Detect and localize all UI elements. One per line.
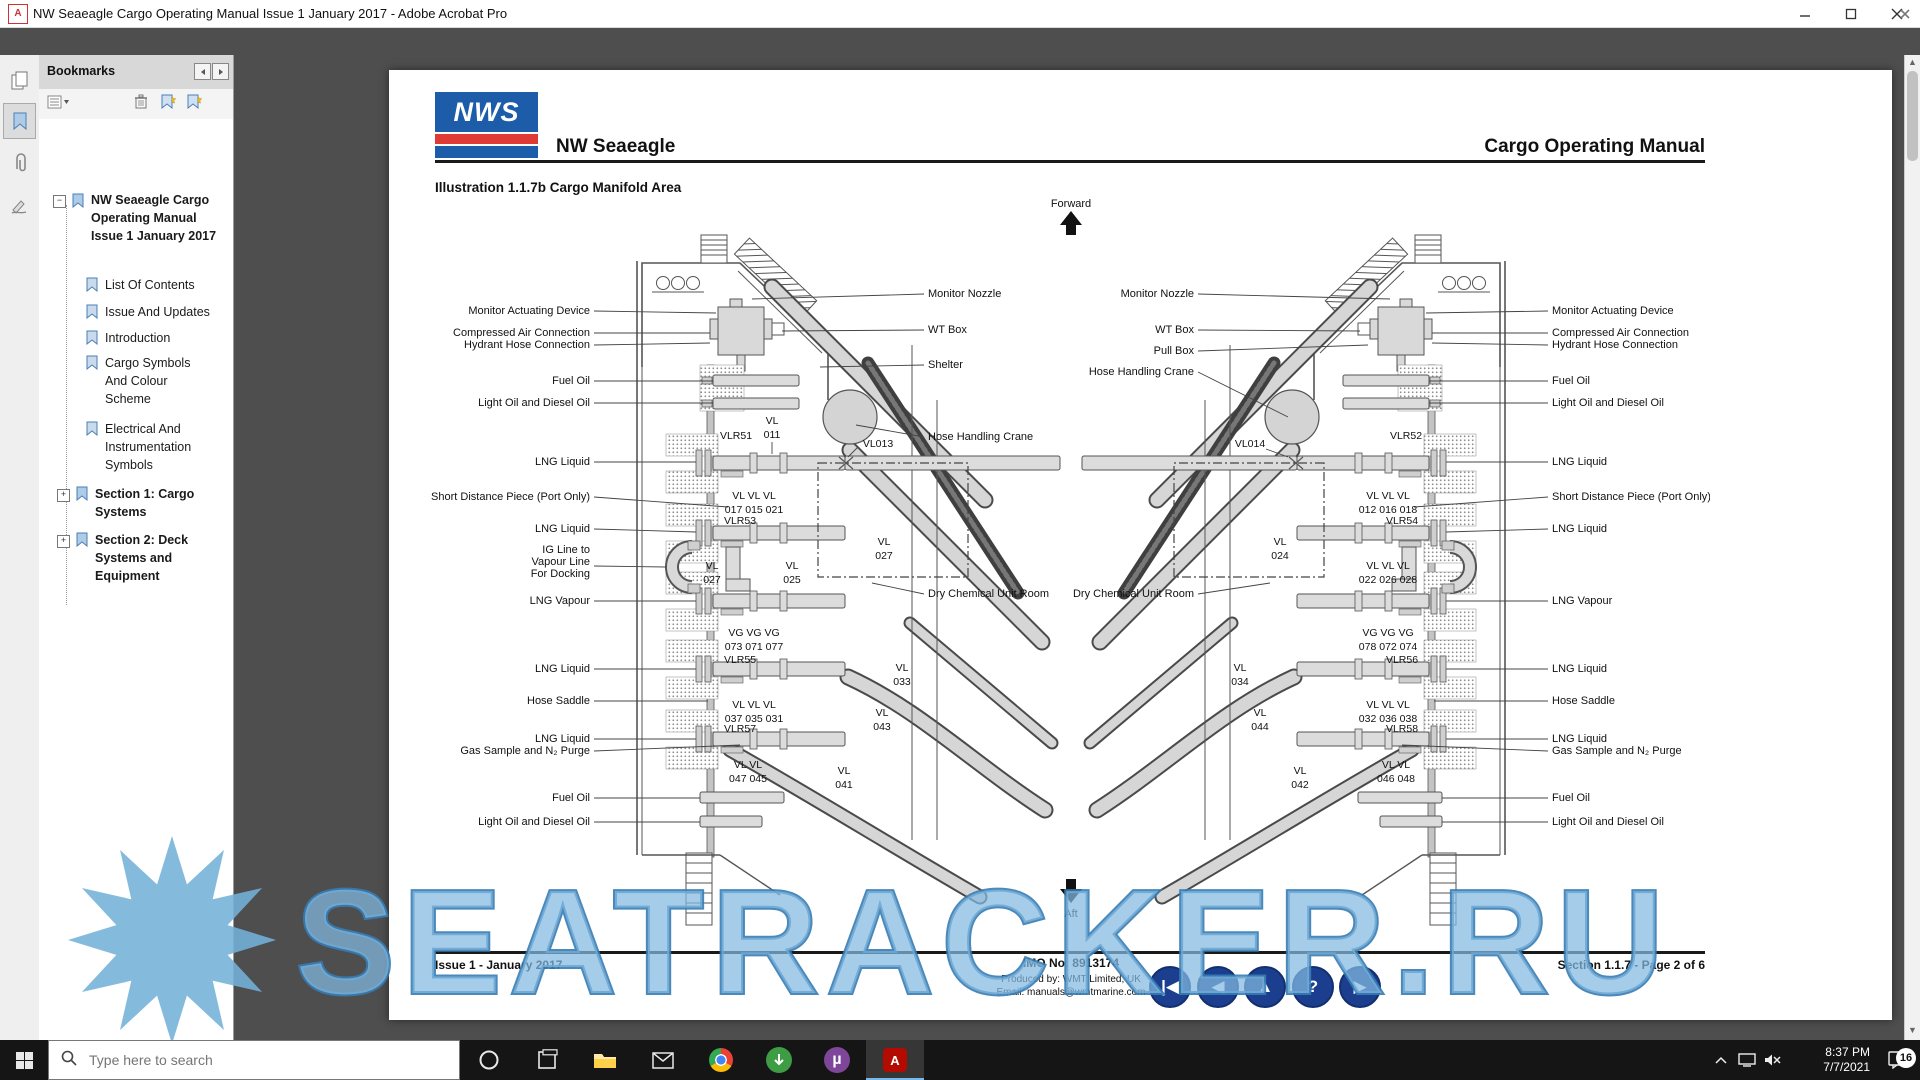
bookmark-issue-and-updates[interactable]: Issue And Updates — [105, 303, 227, 321]
valve-label: VG VG VG — [728, 627, 779, 639]
callout: Compressed Air Connection — [453, 327, 590, 339]
navigation-pane-strip — [0, 55, 40, 1040]
ship-name: NW Seaeagle — [556, 136, 675, 158]
clock-date: 7/7/2021 — [1792, 1060, 1870, 1075]
callout: LNG Liquid — [1552, 663, 1607, 675]
attachments-icon[interactable] — [3, 145, 36, 181]
callout: Hose Handling Crane — [928, 431, 1033, 443]
valve-label: VL — [766, 415, 779, 427]
valve-label: VLR56 — [1386, 654, 1418, 666]
valve-label: VLR52 — [1390, 430, 1422, 442]
callout: Fuel Oil — [1552, 792, 1590, 804]
valve-label: VL — [1234, 662, 1247, 674]
callout: Shelter — [928, 359, 963, 371]
valve-label: VL VL VL — [732, 699, 776, 711]
callout: Monitor Actuating Device — [1552, 305, 1674, 317]
callout: Gas Sample and N₂ Purge — [1552, 745, 1682, 757]
valve-label: VLR51 — [720, 430, 752, 442]
callout: WT Box — [928, 324, 967, 336]
taskbar-search-box[interactable] — [48, 1040, 460, 1080]
callout: LNG Vapour — [530, 595, 591, 607]
aft-arrow-shaft — [1066, 879, 1076, 889]
callout: Light Oil and Diesel Oil — [478, 816, 590, 828]
bookmark-icon — [85, 277, 99, 295]
download-manager-icon[interactable] — [750, 1040, 808, 1080]
valve-label: 024 — [1271, 550, 1289, 562]
display-icon[interactable] — [1734, 1040, 1760, 1080]
nws-logo-red-stripe — [435, 134, 538, 144]
callout: Monitor Nozzle — [1121, 288, 1194, 300]
valve-label: 025 — [783, 574, 801, 586]
clock-time: 8:37 PM — [1792, 1045, 1870, 1060]
bookmarks-toolbar — [39, 89, 233, 120]
toolbar-close-icon[interactable] — [1898, 7, 1912, 21]
callout: Short Distance Piece (Port Only) — [1552, 491, 1710, 503]
action-center-icon[interactable]: 16 — [1876, 1040, 1920, 1080]
valve-label: VL — [878, 536, 891, 548]
valve-label: VL VL VL — [732, 490, 776, 502]
window-title: NW Seaeagle Cargo Operating Manual Issue… — [33, 6, 507, 21]
volume-muted-icon[interactable] — [1760, 1040, 1786, 1080]
task-view-icon[interactable] — [518, 1040, 576, 1080]
callout: Monitor Nozzle — [928, 288, 1001, 300]
callout: Light Oil and Diesel Oil — [1552, 397, 1664, 409]
starboard-callouts-left: Monitor Nozzle WT Box Pull Box Hose Hand… — [1073, 288, 1390, 600]
search-icon — [61, 1050, 77, 1071]
mail-icon[interactable] — [634, 1040, 692, 1080]
screen: A NW Seaeagle Cargo Operating Manual Iss… — [0, 0, 1920, 1080]
bookmark-section-1[interactable]: Section 1: Cargo Systems — [95, 485, 217, 521]
vertical-scrollbar[interactable]: ▲ ▼ — [1904, 55, 1920, 1040]
bookmark-icon — [71, 193, 85, 211]
valve-label: VLR55 — [724, 654, 756, 666]
new-tagged-bookmark-icon[interactable] — [185, 93, 203, 115]
callout: Hydrant Hose Connection — [464, 339, 590, 351]
callout: Fuel Oil — [552, 792, 590, 804]
bookmark-icon — [75, 486, 89, 504]
callout: LNG Liquid — [1552, 456, 1607, 468]
notification-count-badge: 16 — [1896, 1048, 1916, 1068]
taskbar-clock[interactable]: 8:37 PM 7/7/2021 — [1792, 1045, 1870, 1075]
bookmark-icon — [85, 355, 99, 373]
callout: LNG Vapour — [1552, 595, 1613, 607]
bookmark-cargo-symbols[interactable]: Cargo Symbols And Colour Scheme — [105, 354, 209, 408]
valve-label: 022 026 028 — [1359, 574, 1418, 586]
header-rule — [435, 160, 1705, 163]
callout: LNG Liquid — [1552, 733, 1607, 745]
valve-label: VLR58 — [1386, 723, 1418, 735]
callout: Fuel Oil — [1552, 375, 1590, 387]
callout: LNG Liquid — [535, 663, 590, 675]
nws-logo: NWS — [435, 92, 538, 132]
callout: Hose Saddle — [1552, 695, 1615, 707]
valve-label: VLR53 — [724, 515, 756, 527]
cargo-manifold-diagram: Forward Aft Monitor Actuating Device Com… — [420, 195, 1710, 947]
valve-label: VL — [838, 765, 851, 777]
callout: Gas Sample and N₂ Purge — [460, 745, 590, 757]
valve-label: 042 — [1291, 779, 1309, 791]
forward-label: Forward — [1051, 198, 1091, 210]
nav-next-page-button[interactable]: ▶ — [1339, 966, 1381, 1008]
scrollbar-thumb[interactable] — [1907, 71, 1918, 161]
callout: LNG Liquid — [535, 523, 590, 535]
aft-arrow-icon — [1060, 889, 1082, 903]
acrobat-taskbar-icon[interactable]: A — [866, 1040, 924, 1080]
callout: Pull Box — [1154, 345, 1195, 357]
illustration-title: Illustration 1.1.7b Cargo Manifold Area — [435, 180, 681, 195]
nav-contents-button[interactable]: ▲ — [1244, 966, 1286, 1008]
valve-label: VL — [896, 662, 909, 674]
signatures-icon[interactable] — [3, 187, 36, 223]
bookmark-icon — [85, 421, 99, 439]
callout: Short Distance Piece (Port Only) — [431, 491, 590, 503]
callout: Vapour Line — [531, 556, 590, 568]
callout: LNG Liquid — [1552, 523, 1607, 535]
valve-label: 044 — [1251, 721, 1269, 733]
bookmarks-tree: − NW Seaeagle Cargo Operating Manual Iss… — [39, 119, 233, 1040]
manual-title: Cargo Operating Manual — [1355, 136, 1705, 158]
nav-previous-page-button[interactable]: ◀ — [1197, 966, 1239, 1008]
callout: Monitor Actuating Device — [468, 305, 590, 317]
callout: Light Oil and Diesel Oil — [478, 397, 590, 409]
valve-label: VL VL VL — [1366, 699, 1410, 711]
callout: WT Box — [1155, 324, 1194, 336]
valve-label: 046 048 — [1377, 773, 1415, 785]
valve-label: VL013 — [863, 438, 894, 450]
acrobat-app-icon: A — [8, 4, 28, 24]
callout: Light Oil and Diesel Oil — [1552, 816, 1664, 828]
valve-label: VLR54 — [1386, 515, 1418, 527]
forward-arrow-shaft — [1066, 225, 1076, 235]
scroll-down-icon[interactable]: ▼ — [1907, 1025, 1918, 1036]
bookmark-introduction[interactable]: Introduction — [105, 329, 223, 347]
start-button[interactable] — [0, 1040, 48, 1080]
footer-issue: Issue 1 - January 2017 — [435, 958, 562, 972]
callout: LNG Liquid — [535, 456, 590, 468]
bookmarks-panel-icon[interactable] — [3, 103, 36, 139]
panel-forward-icon[interactable] — [212, 63, 229, 80]
title-bar: A NW Seaeagle Cargo Operating Manual Iss… — [0, 0, 1920, 28]
port-manifold-graphics — [637, 235, 1060, 925]
close-button[interactable] — [1874, 0, 1920, 27]
section1-expander[interactable]: + — [57, 489, 70, 502]
bookmark-electrical-symbols[interactable]: Electrical And Instrumentation Symbols — [105, 420, 217, 474]
maximize-button[interactable] — [1828, 0, 1874, 27]
forward-arrow-icon — [1060, 211, 1082, 225]
bookmark-list-of-contents[interactable]: List Of Contents — [105, 276, 223, 294]
panel-back-icon[interactable] — [194, 63, 211, 80]
taskbar: µ A 8:37 PM 7/7/2021 16 — [0, 1040, 1920, 1080]
valve-label: VL — [786, 560, 799, 572]
callout: Hydrant Hose Connection — [1552, 339, 1678, 351]
valve-label: VL — [876, 707, 889, 719]
nav-first-page-button[interactable]: |◀ — [1149, 966, 1191, 1008]
aft-label: Aft — [1064, 908, 1077, 920]
valve-label: VL014 — [1235, 438, 1266, 450]
valve-label: VL VL VL — [1366, 490, 1410, 502]
valve-label: 027 — [703, 574, 721, 586]
utorrent-icon[interactable]: µ — [808, 1040, 866, 1080]
bookmark-options-icon[interactable] — [47, 94, 71, 115]
scroll-up-icon[interactable]: ▲ — [1907, 57, 1918, 68]
valve-label: VL VL — [734, 759, 762, 771]
valve-label: 043 — [873, 721, 891, 733]
valve-label: 041 — [835, 779, 853, 791]
valve-label: 047 045 — [729, 773, 767, 785]
starboard-manifold-graphics — [1082, 235, 1505, 925]
file-explorer-icon[interactable] — [576, 1040, 634, 1080]
nav-help-button[interactable]: ? — [1292, 966, 1334, 1008]
valve-label: 073 071 077 — [725, 641, 784, 653]
delete-bookmark-icon[interactable] — [133, 93, 149, 115]
valve-label: VL — [1254, 707, 1267, 719]
valve-label: VL — [1274, 536, 1287, 548]
callout: IG Line to — [542, 544, 590, 556]
valve-label: 078 072 074 — [1359, 641, 1418, 653]
search-input[interactable] — [87, 1051, 431, 1069]
callout: LNG Liquid — [535, 733, 590, 745]
valve-label: VL VL VL — [1366, 560, 1410, 572]
system-tray: 8:37 PM 7/7/2021 16 — [1708, 1040, 1920, 1080]
port-callouts-right: Monitor Nozzle WT Box Shelter Hose Handl… — [752, 288, 1049, 600]
callout: Fuel Oil — [552, 375, 590, 387]
tray-expand-icon[interactable] — [1708, 1040, 1734, 1080]
pdf-page: NWS NW Seaeagle Cargo Operating Manual I… — [389, 70, 1892, 1020]
valve-label: 027 — [875, 550, 893, 562]
callout: For Docking — [531, 568, 590, 580]
root-expander[interactable]: − — [53, 195, 66, 208]
section2-expander[interactable]: + — [57, 535, 70, 548]
bookmark-icon — [85, 330, 99, 348]
callout: Compressed Air Connection — [1552, 327, 1689, 339]
callout: Dry Chemical Unit Room — [1073, 588, 1194, 600]
valve-label: 011 — [764, 429, 781, 441]
bookmark-icon — [75, 532, 89, 550]
footer-section-page: Section 1.1.7 - Page 2 of 6 — [1405, 958, 1705, 972]
callout: Hose Saddle — [527, 695, 590, 707]
footer-rule — [435, 951, 1705, 954]
bookmarks-panel-title: Bookmarks — [47, 64, 115, 78]
minimize-button[interactable] — [1782, 0, 1828, 27]
bookmark-icon — [85, 304, 99, 322]
valve-label: 034 — [1231, 676, 1249, 688]
callout: Dry Chemical Unit Room — [928, 588, 1049, 600]
callout: Hose Handling Crane — [1089, 366, 1194, 378]
chrome-icon[interactable] — [692, 1040, 750, 1080]
bookmark-section-2[interactable]: Section 2: Deck Systems and Equipment — [95, 531, 205, 585]
bookmarks-panel: Bookmarks − — [39, 55, 234, 1040]
valve-label: 033 — [893, 676, 911, 688]
nws-logo-blue-stripe — [435, 146, 538, 158]
new-bookmark-icon[interactable] — [159, 93, 177, 115]
bookmarks-header: Bookmarks — [39, 55, 233, 90]
nws-logo-text: NWS — [454, 97, 520, 128]
valve-label: VL VL — [1382, 759, 1410, 771]
valve-label: VL — [1294, 765, 1307, 777]
valve-label: VLR57 — [724, 723, 756, 735]
valve-label: VG VG VG — [1362, 627, 1413, 639]
valve-label: VL — [706, 560, 719, 572]
bookmark-root[interactable]: NW Seaeagle Cargo Operating Manual Issue… — [91, 191, 217, 245]
cortana-icon[interactable] — [460, 1040, 518, 1080]
page-thumbnails-icon[interactable] — [3, 63, 36, 99]
